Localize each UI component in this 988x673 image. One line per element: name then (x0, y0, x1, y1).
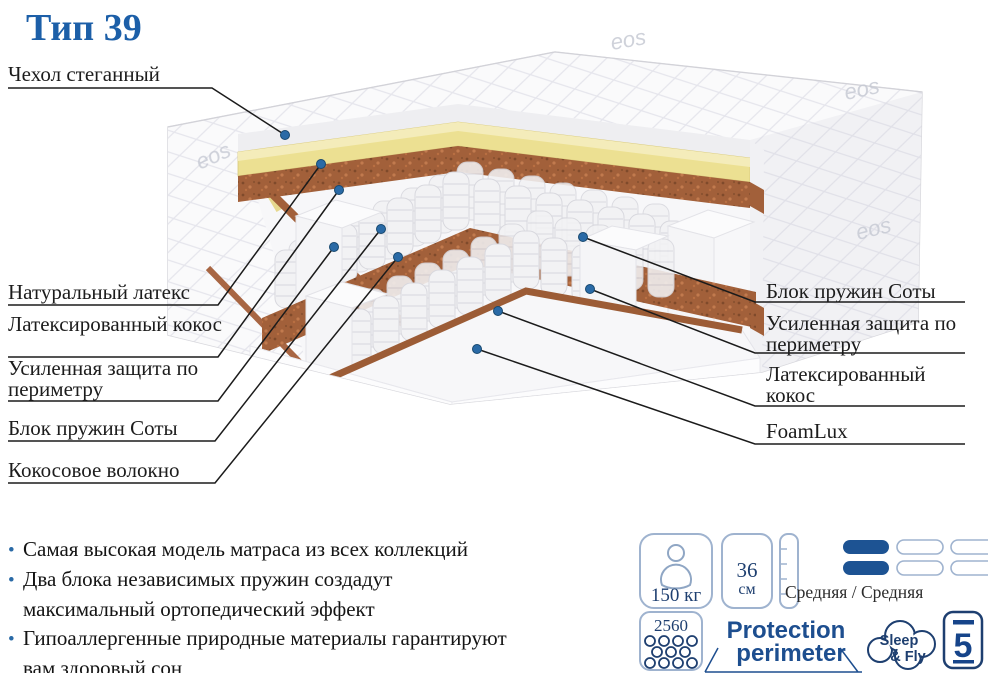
list-item: •Два блока независимых пружин создадут (8, 565, 633, 595)
springs-count-badge: 2560 (640, 612, 702, 670)
perimeter-word: perimeter (736, 640, 845, 667)
list-item: максимальный ортопедический эффект (8, 595, 633, 624)
label-honeycomb-springs-left: Блок пружин Соты (8, 418, 226, 439)
springs-count-value: 2560 (654, 616, 688, 635)
brand-line2: & Fly (890, 649, 925, 665)
page-title: Тип 39 (26, 6, 142, 50)
height-value: 36 (737, 558, 758, 582)
label-latex-coir-right: Латексированный кокос (766, 364, 971, 406)
label-natural-latex: Натуральный латекс (8, 282, 226, 303)
brand-line1: Sleep (880, 633, 919, 649)
list-item: •Гипоаллергенные природные материалы гар… (8, 624, 633, 654)
right-cut-wall (750, 140, 764, 372)
label-perimeter-protection-right: Усиленная защита по периметру (766, 313, 971, 355)
max-weight-badge: 150 кг (640, 534, 712, 608)
feature-bullet-list: •Самая высокая модель матраса из всех ко… (8, 535, 633, 673)
infographic: eos eos eos eos (0, 0, 988, 673)
warranty-top-bar (953, 620, 974, 625)
label-honeycomb-springs-right: Блок пружин Соты (766, 281, 971, 302)
label-cover: Чехол стеганный (8, 64, 226, 85)
height-unit: см (738, 581, 755, 598)
warranty-bottom-bar (953, 660, 974, 664)
bullet-text: вам здоровый сон (23, 656, 182, 673)
label-foamlux: FoamLux (766, 421, 971, 442)
bullet-text: Гипоаллергенные природные материалы гара… (23, 626, 507, 650)
warranty-badge: 5 (944, 612, 982, 668)
firmness-label: Средняя / Средняя (785, 582, 923, 602)
list-item: •Самая высокая модель матраса из всех ко… (8, 535, 633, 565)
firmness-indicator: Средняя / Средняя (785, 540, 988, 602)
max-weight-value: 150 кг (651, 585, 701, 606)
bullet-marker: • (8, 566, 23, 595)
label-coconut-fiber: Кокосовое волокно (8, 460, 226, 481)
label-latex-coir-left: Латексированный кокос (8, 314, 226, 335)
eos-logo: eos (609, 24, 648, 55)
bullet-marker: • (8, 625, 23, 654)
brand-logo: Sleep & Fly (868, 621, 935, 669)
features-panel: 150 кг 36 см С (640, 534, 988, 672)
bullet-text: Самая высокая модель матраса из всех кол… (23, 537, 468, 561)
bullet-marker: • (8, 536, 23, 565)
cutaway (208, 104, 764, 424)
protection-perimeter-logo: Protection perimeter (705, 617, 862, 672)
height-badge: 36 см (722, 534, 772, 608)
label-perimeter-protection-left: Усиленная защита по периметру (8, 358, 226, 400)
list-item: вам здоровый сон (8, 654, 633, 673)
warranty-years: 5 (954, 627, 973, 665)
bullet-text: Два блока независимых пружин создадут (23, 567, 392, 591)
bullet-text: максимальный ортопедический эффект (23, 597, 375, 621)
